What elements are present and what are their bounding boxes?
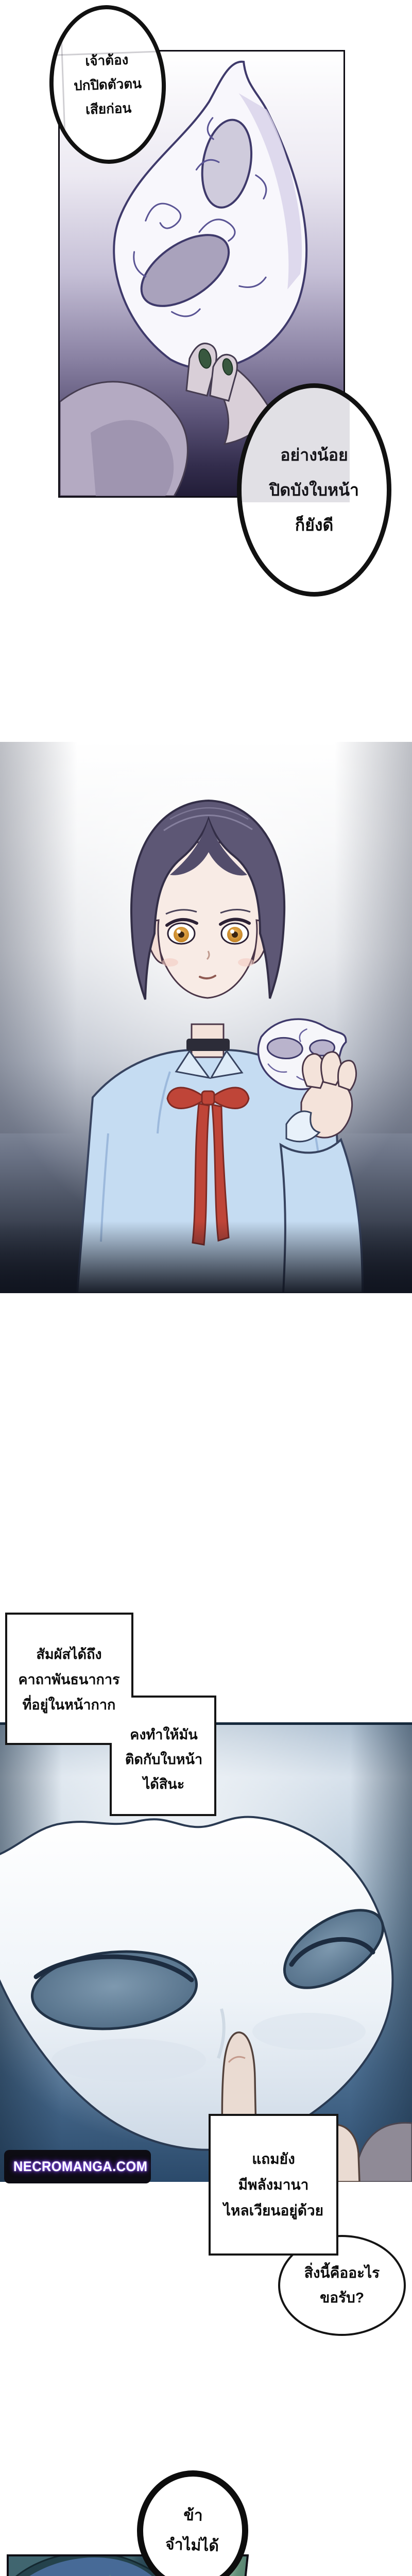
caption-text: สัมผัสได้ถึง คาถาพันธนาการ ที่อยู่ในหน้า… xyxy=(18,1642,119,1718)
speech-bubble-at-least: อย่างน้อย ปิดบังใบหน้า ก็ยังดี xyxy=(237,383,391,597)
page-root: เจ้าต้อง ปกปิดตัวตน เสียก่อน อย่างน้อย ป… xyxy=(0,0,412,2576)
caption-text: แถมยัง มีพลังมานา ไหลเวียนอยู่ด้วย xyxy=(224,2146,323,2224)
speech-text: สิ่งนี้คืออะไร ขอรับ? xyxy=(304,2261,380,2310)
caption-stick-to-face: คงทำให้มัน ติดกับใบหน้า ได้สินะ xyxy=(114,1716,213,1803)
speech-text: ข้า จำไม่ได้ xyxy=(165,2500,220,2562)
caption-binding-spell: สัมผัสได้ถึง คาถาพันธนาการ ที่อยู่ในหน้า… xyxy=(11,1628,127,1731)
speech-text: เจ้าต้อง ปกปิดตัวตน เสียก่อน xyxy=(73,47,143,122)
panel-boy-holding-mask xyxy=(0,742,412,1293)
caption-mana-flow: แถมยัง มีพลังมานา ไหลเวียนอยู่ด้วย xyxy=(209,2114,338,2256)
panel-showthrough-tint xyxy=(242,388,350,502)
speech-bubble-dont-remember: ข้า จำไม่ได้ xyxy=(135,2468,250,2576)
caption-text: คงทำให้มัน ติดกับใบหน้า ได้สินะ xyxy=(125,1722,202,1797)
watermark-badge: NECROMANGA.COM xyxy=(4,2150,151,2183)
watermark-label: NECROMANGA.COM xyxy=(13,2159,147,2175)
boy-holding-mask-illustration xyxy=(0,742,412,1293)
